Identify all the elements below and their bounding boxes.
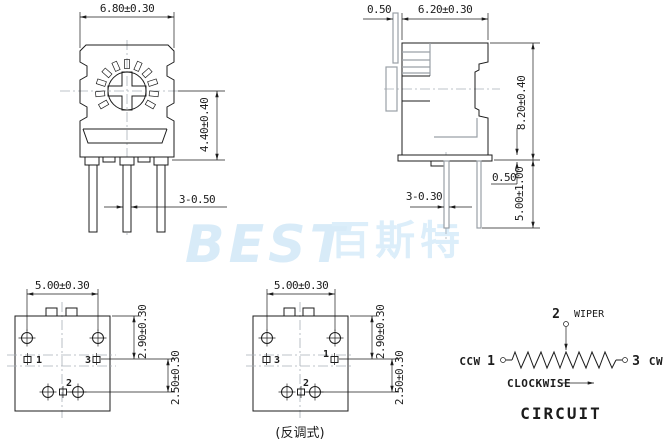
watermark: BEST 百斯特 bbox=[185, 215, 465, 275]
side-depth-dimension: 6.20±0.30 bbox=[402, 3, 488, 40]
drawing-svg: BEST 百斯特 bbox=[0, 0, 669, 445]
bvr-tab-right bbox=[303, 308, 314, 316]
side-standoff-dim-text: 0.50 bbox=[492, 171, 516, 184]
side-height-dim-text: 8.20±0.40 bbox=[515, 76, 528, 130]
front-bevel-strip bbox=[83, 129, 167, 143]
bvs-body-outline bbox=[15, 316, 110, 411]
bvs-terminal-left-label: 1 bbox=[36, 355, 42, 366]
bvs-upper-row-dim-text: 2.90±0.30 bbox=[136, 305, 149, 359]
bvs-tab-right bbox=[66, 308, 77, 316]
side-pin-middle bbox=[444, 161, 449, 228]
bvr-terminal-left-label: 3 bbox=[274, 355, 280, 366]
side-pin-width-dimension: 3-0.30 bbox=[406, 190, 472, 207]
front-pin-width-dim-text: 3-0.50 bbox=[179, 193, 215, 206]
bvr-caption: (反调式) bbox=[275, 426, 324, 441]
front-width-dim-text: 6.80±0.30 bbox=[100, 2, 154, 15]
bvs-terminal-middle-label: 2 bbox=[66, 378, 72, 389]
bvr-pitch-dim-text: 5.00±0.30 bbox=[274, 279, 328, 292]
side-foot-tab bbox=[431, 161, 444, 166]
bvs-lower-row-dim-text: 2.50±0.30 bbox=[169, 351, 182, 405]
bvs-tab-left bbox=[46, 308, 57, 316]
bvr-hole-top-left bbox=[259, 330, 276, 347]
circuit-ccw-label: CCW bbox=[459, 355, 480, 368]
bvr-pitch-dimension: 5.00±0.30 bbox=[267, 279, 335, 331]
circuit-ccw-terminal-node bbox=[501, 358, 506, 363]
side-inner-step bbox=[434, 118, 477, 137]
side-flange-dim-text: 0.50 bbox=[367, 3, 391, 16]
bvr-hole-top-right bbox=[327, 330, 344, 347]
side-grooves bbox=[402, 43, 430, 101]
bvs-upper-row-dimension: 2.90±0.30 bbox=[101, 305, 175, 359]
circuit-resistor-zigzag bbox=[512, 352, 616, 368]
front-height-dim-text: 4.40±0.40 bbox=[198, 98, 211, 152]
circuit-wiper-terminal-node bbox=[564, 322, 569, 327]
bottom-view-reverse: 3 1 2 5.00±0.30 2.90±0.30 2.50±0.30 (反调式… bbox=[246, 279, 406, 441]
bvr-upper-row-dim-text: 2.90±0.30 bbox=[374, 305, 387, 359]
side-height-dimension: 8.20±0.40 bbox=[490, 43, 540, 160]
circuit-wiper-label: WIPER bbox=[574, 309, 605, 320]
watermark-latin-text: BEST bbox=[185, 215, 349, 275]
circuit-cw-label: CW bbox=[649, 355, 663, 368]
bvr-terminal-middle-label: 2 bbox=[303, 378, 309, 389]
bvr-hole-bottom-left bbox=[279, 384, 296, 401]
side-pin-width-dim-text: 3-0.30 bbox=[406, 190, 442, 203]
side-flange-dimension: 0.50 bbox=[363, 3, 393, 19]
side-standoff-dimension: 0.50 bbox=[491, 128, 517, 184]
side-depth-dim-text: 6.20±0.30 bbox=[418, 3, 472, 16]
side-pin-edge bbox=[477, 161, 481, 228]
circuit-schematic: 2 WIPER CCW 1 3 CW CLOCKWISE CIRCUIT bbox=[459, 307, 663, 423]
circuit-cw-terminal-node bbox=[623, 358, 628, 363]
rotor-flange-plate bbox=[393, 13, 398, 63]
front-feet bbox=[85, 157, 168, 165]
side-seating-plate bbox=[398, 155, 492, 161]
bvs-hole-top-left bbox=[19, 330, 36, 347]
bvr-terminal-right-label: 1 bbox=[323, 349, 329, 360]
side-view: 0.50 6.20±0.30 8.20±0.40 5.00±1.00 0.50 bbox=[363, 3, 540, 240]
bvs-hole-top-right bbox=[90, 330, 107, 347]
bvs-hole-bottom-left bbox=[40, 384, 57, 401]
front-pins bbox=[89, 165, 165, 232]
circuit-cw-terminal-number: 3 bbox=[632, 354, 640, 369]
circuit-ccw-terminal-number: 1 bbox=[487, 354, 495, 369]
front-height-dimension: 4.40±0.40 bbox=[172, 91, 225, 160]
circuit-clockwise-label: CLOCKWISE bbox=[507, 377, 571, 390]
front-view: 6.80±0.30 4.40±0.40 3-0.50 bbox=[60, 2, 227, 238]
bvr-lower-row-dim-text: 2.50±0.30 bbox=[393, 351, 406, 405]
bvs-terminal-right-label: 3 bbox=[85, 355, 91, 366]
bottom-view-standard: 1 3 2 5.00±0.30 2.90±0.30 2.50±0.30 bbox=[7, 279, 182, 418]
circuit-wiper-terminal-number: 2 bbox=[552, 307, 560, 322]
bvs-pitch-dimension: 5.00±0.30 bbox=[27, 279, 98, 331]
circuit-title: CIRCUIT bbox=[520, 404, 601, 423]
trimmer-potentiometer-datasheet-drawing: BEST 百斯特 bbox=[0, 0, 669, 445]
bvs-pitch-dim-text: 5.00±0.30 bbox=[35, 279, 89, 292]
bvr-tab-left bbox=[284, 308, 295, 316]
